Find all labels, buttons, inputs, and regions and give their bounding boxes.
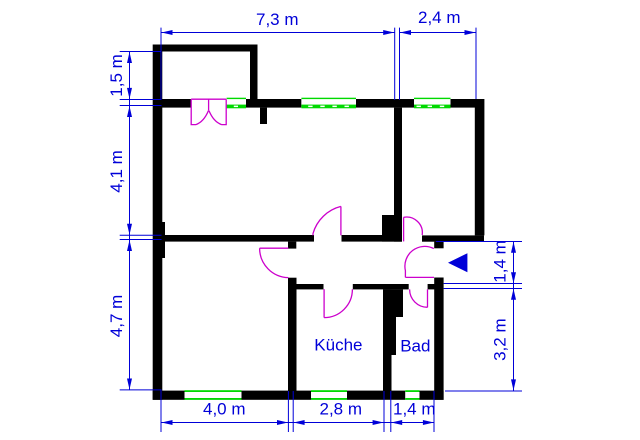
- svg-text:2,8 m: 2,8 m: [320, 399, 363, 418]
- svg-text:4,1 m: 4,1 m: [107, 150, 126, 193]
- svg-text:1,5 m: 1,5 m: [107, 54, 126, 97]
- svg-text:7,3 m: 7,3 m: [256, 10, 299, 29]
- svg-text:4,0 m: 4,0 m: [203, 399, 246, 418]
- svg-text:3,2 m: 3,2 m: [491, 318, 510, 361]
- svg-text:Küche: Küche: [314, 336, 362, 355]
- svg-text:1,4 m: 1,4 m: [491, 240, 510, 283]
- svg-text:Bad: Bad: [400, 336, 430, 355]
- svg-text:2,4 m: 2,4 m: [418, 8, 461, 27]
- svg-text:1,4 m: 1,4 m: [393, 399, 436, 418]
- svg-text:4,7 m: 4,7 m: [107, 295, 126, 338]
